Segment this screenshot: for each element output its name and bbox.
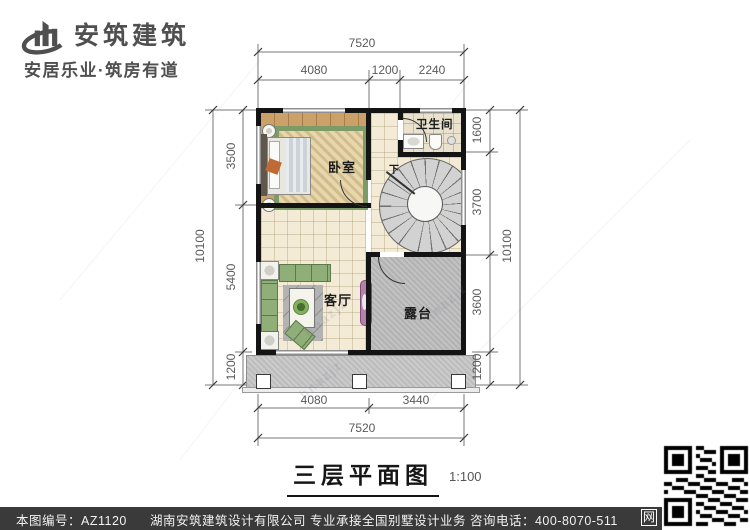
brand-name: 安筑建筑 [74, 16, 190, 52]
dim-bottom-seg: 3440 [394, 393, 438, 407]
wall-bedroom-right [366, 108, 371, 180]
balcony-column [352, 374, 367, 389]
living-window-bottom [276, 350, 348, 355]
living-window-left [256, 262, 261, 324]
bedroom-window-left [256, 126, 261, 184]
wall-living-terrace-divider [366, 252, 371, 355]
dim-left-seg: 1200 [224, 345, 238, 389]
company-info: 湖南安筑建筑设计有限公司 专业承接全国别墅设计业务 咨询电话：400-8070-… [150, 510, 618, 529]
floor-plan-page: 安筑建筑 安居乐业·筑房有道 下 [0, 0, 750, 530]
wall-right [461, 108, 466, 355]
brand-tagline: 安居乐业·筑房有道 [24, 56, 179, 81]
wall-terrace-top-right [404, 252, 466, 257]
toilet [429, 134, 442, 150]
bathroom-window-top [420, 108, 452, 113]
wall-bath-bottom [398, 152, 466, 157]
bathroom-label: 卫生间 [416, 116, 454, 132]
corridor-floor [371, 113, 398, 157]
web-badge: 网 [641, 509, 657, 526]
dim-left-seg: 5400 [224, 255, 238, 299]
balcony-column [256, 374, 271, 389]
dim-right-seg: 1600 [470, 108, 484, 152]
dim-right-seg: 1200 [470, 345, 484, 389]
dim-right-total: 10100 [500, 224, 514, 268]
dim-top-seg: 2240 [410, 63, 454, 77]
dim-top-seg: 4080 [292, 63, 336, 77]
drawing-scale: 1:100 [449, 469, 482, 484]
dim-top-seg: 1200 [363, 63, 407, 77]
drawing-title: 三层平面图 [287, 456, 439, 497]
sofa-left [261, 280, 278, 332]
bed-blanket [286, 138, 308, 192]
logo-building-icon [20, 10, 72, 58]
dim-left-total: 10100 [193, 224, 207, 268]
table-plant [293, 299, 309, 315]
sofa-top [279, 264, 331, 282]
balcony-column [451, 374, 466, 389]
drawing-code: 本图编号：AZ1120 [16, 510, 127, 529]
corner-table [260, 261, 279, 280]
bedroom-window-top [283, 108, 345, 113]
floor-drain [447, 136, 456, 145]
corner-table [260, 331, 279, 350]
dim-bottom-total: 7520 [340, 421, 384, 435]
qr-code [662, 444, 750, 530]
dim-top-total: 7520 [340, 36, 384, 50]
dim-bottom-seg: 4080 [292, 393, 336, 407]
stair-down-label: 下 [389, 161, 399, 176]
dim-right-seg: 3600 [470, 280, 484, 324]
stair-window-right [461, 170, 466, 225]
bedroom-label: 卧室 [328, 157, 356, 176]
dim-left-seg: 3500 [224, 134, 238, 178]
dim-right-seg: 3700 [470, 180, 484, 224]
stair-zone: 下 [371, 157, 461, 252]
